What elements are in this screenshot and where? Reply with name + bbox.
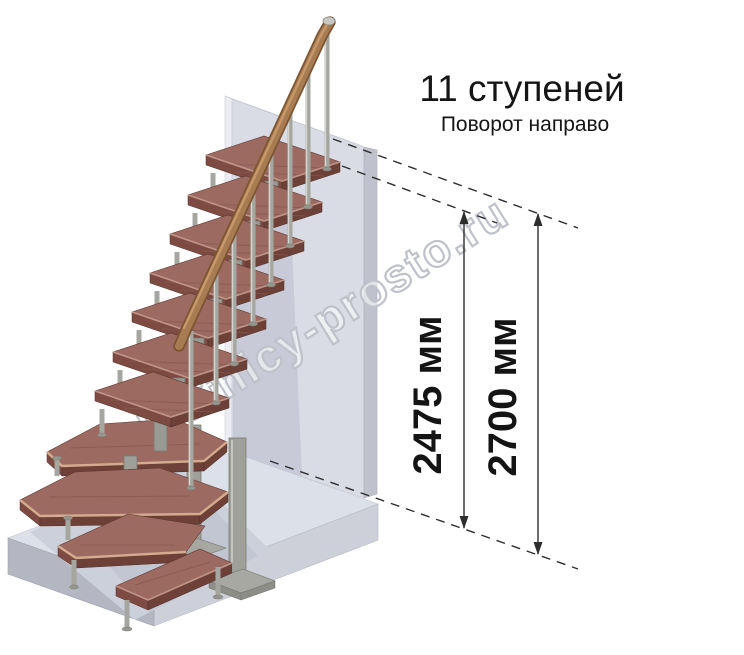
handrail-top-cap: [323, 17, 335, 25]
dimension-label-2475: 2475 мм: [406, 315, 450, 474]
dimension-label-2700: 2700 мм: [481, 317, 525, 476]
dimension-2700: [534, 213, 543, 555]
staircase-diagram-page: lestnicy-prosto.ru: [0, 0, 744, 655]
page-subtitle: Поворот направо: [441, 113, 609, 136]
staircase-illustration: lestnicy-prosto.ru: [0, 0, 744, 655]
page-title: 11 ступеней: [419, 68, 624, 109]
